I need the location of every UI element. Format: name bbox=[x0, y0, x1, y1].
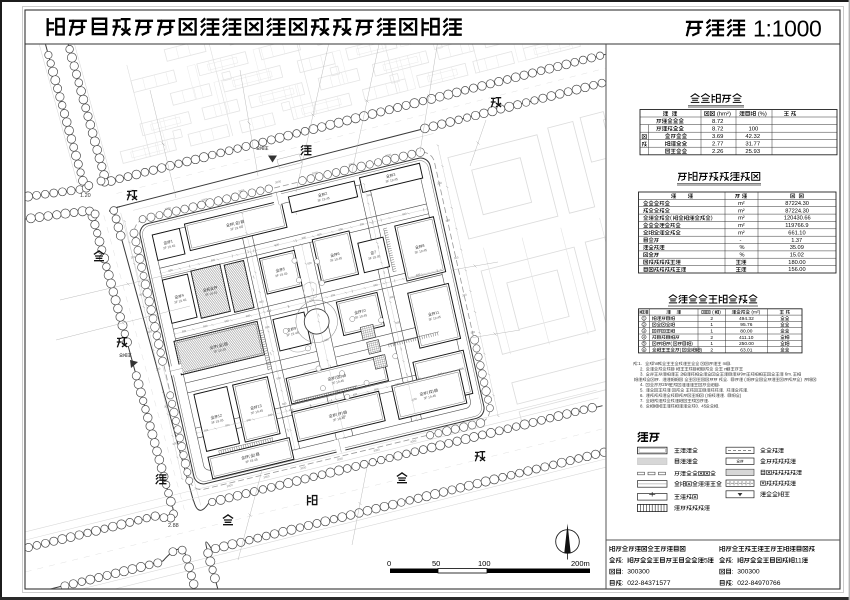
svg-text:2: 2 bbox=[710, 347, 713, 353]
svg-text:.: . bbox=[723, 388, 724, 393]
svg-text:156.00: 156.00 bbox=[788, 267, 805, 273]
svg-text:(m²): (m²) bbox=[751, 310, 760, 316]
svg-text:5: 5 bbox=[643, 342, 645, 346]
svg-text:.: . bbox=[708, 398, 709, 403]
svg-text:7.: 7. bbox=[640, 398, 644, 403]
svg-text:.: . bbox=[747, 388, 748, 393]
svg-text:5: 5 bbox=[704, 557, 708, 564]
svg-text:5.: 5. bbox=[640, 388, 644, 393]
svg-text:m: m bbox=[724, 366, 728, 371]
svg-text:m²: m² bbox=[738, 230, 745, 236]
svg-text:100: 100 bbox=[749, 126, 760, 132]
svg-text:2: 2 bbox=[710, 335, 713, 341]
svg-text:.: . bbox=[727, 377, 728, 382]
svg-text:0: 0 bbox=[387, 559, 391, 568]
svg-text:m: m bbox=[723, 361, 727, 366]
svg-text:3: 3 bbox=[643, 329, 645, 333]
svg-text:300300: 300300 bbox=[627, 569, 650, 576]
svg-text:2.26: 2.26 bbox=[712, 149, 724, 155]
svg-text:9m: 9m bbox=[741, 372, 747, 377]
svg-text::: : bbox=[732, 569, 734, 576]
svg-text:15.02: 15.02 bbox=[790, 253, 804, 259]
svg-text:.: . bbox=[730, 361, 731, 366]
svg-text:m²: m² bbox=[738, 216, 745, 222]
svg-text:87224.30: 87224.30 bbox=[785, 208, 809, 214]
svg-text:2: 2 bbox=[643, 323, 645, 327]
svg-text:2.77: 2.77 bbox=[712, 142, 723, 148]
svg-text:63.01: 63.01 bbox=[740, 347, 752, 353]
svg-text:): ) bbox=[711, 216, 713, 222]
svg-text:-: - bbox=[740, 238, 742, 244]
svg-text:1: 1 bbox=[710, 329, 713, 335]
svg-text:.: . bbox=[719, 382, 720, 387]
svg-text:2: 2 bbox=[710, 316, 713, 322]
svg-text:180.00: 180.00 bbox=[788, 260, 805, 266]
svg-text::: : bbox=[622, 557, 624, 564]
svg-text:42.32: 42.32 bbox=[745, 134, 760, 140]
svg-text:11: 11 bbox=[795, 557, 802, 564]
svg-text:%: % bbox=[740, 253, 745, 259]
svg-text:.: . bbox=[659, 377, 660, 382]
svg-text:022-84970766: 022-84970766 bbox=[737, 580, 781, 587]
svg-text:1: 1 bbox=[710, 322, 713, 328]
svg-text:3.: 3. bbox=[640, 372, 644, 377]
svg-text:119766.9: 119766.9 bbox=[785, 223, 808, 229]
svg-text:4: 4 bbox=[643, 335, 645, 339]
svg-text:120430.66: 120430.66 bbox=[784, 216, 811, 222]
svg-text:1.20: 1.20 bbox=[80, 193, 91, 199]
svg-text:m²: m² bbox=[738, 208, 745, 214]
svg-text:4.: 4. bbox=[640, 382, 644, 387]
svg-text:661.10: 661.10 bbox=[788, 230, 805, 236]
svg-text:%: % bbox=[740, 245, 745, 251]
svg-text:300300: 300300 bbox=[737, 569, 760, 576]
svg-text:m²: m² bbox=[738, 201, 745, 207]
svg-text::: : bbox=[732, 557, 734, 564]
svg-text:87224.30: 87224.30 bbox=[785, 201, 809, 207]
svg-text:1: 1 bbox=[710, 341, 713, 347]
svg-text:8.72: 8.72 bbox=[712, 119, 723, 125]
svg-text:250.00: 250.00 bbox=[739, 341, 754, 347]
svg-text:494.32: 494.32 bbox=[739, 316, 754, 322]
svg-text:80.00: 80.00 bbox=[740, 329, 752, 335]
svg-text:200m: 200m bbox=[571, 559, 590, 568]
svg-text:95.76: 95.76 bbox=[740, 322, 752, 328]
svg-text:1: 1 bbox=[643, 317, 645, 321]
svg-text:1.37: 1.37 bbox=[791, 238, 802, 244]
svg-text:022-84371577: 022-84371577 bbox=[627, 580, 671, 587]
svg-text:2.: 2. bbox=[640, 366, 644, 371]
svg-text:6: 6 bbox=[643, 348, 645, 352]
svg-text:35.09: 35.09 bbox=[790, 245, 804, 251]
svg-text:31.77: 31.77 bbox=[745, 142, 760, 148]
svg-text::1.: :1. bbox=[637, 361, 642, 366]
svg-text:8.: 8. bbox=[640, 403, 644, 408]
svg-text:(%): (%) bbox=[758, 111, 767, 117]
svg-text:(hm²): (hm²) bbox=[717, 111, 731, 117]
svg-text::: : bbox=[622, 580, 624, 587]
svg-text:6m.: 6m. bbox=[785, 372, 792, 377]
svg-text:100: 100 bbox=[478, 559, 491, 568]
svg-text:411.10: 411.10 bbox=[739, 335, 754, 341]
svg-text:45: 45 bbox=[701, 403, 706, 408]
svg-text:2.88: 2.88 bbox=[168, 523, 179, 529]
svg-text::: : bbox=[622, 569, 624, 576]
svg-text:0.: 0. bbox=[696, 403, 700, 408]
svg-text:m²: m² bbox=[738, 223, 745, 229]
svg-text:8.72: 8.72 bbox=[712, 126, 723, 132]
svg-text:.: . bbox=[718, 403, 719, 408]
svg-text:1:1000: 1:1000 bbox=[753, 16, 822, 42]
svg-text:50: 50 bbox=[432, 559, 440, 568]
svg-text:6.: 6. bbox=[640, 393, 644, 398]
svg-text:(: ( bbox=[670, 216, 672, 222]
svg-text:25.93: 25.93 bbox=[745, 149, 760, 155]
svg-text:.: . bbox=[724, 393, 725, 398]
svg-text:3.69: 3.69 bbox=[712, 134, 723, 140]
svg-text::: : bbox=[732, 580, 734, 587]
